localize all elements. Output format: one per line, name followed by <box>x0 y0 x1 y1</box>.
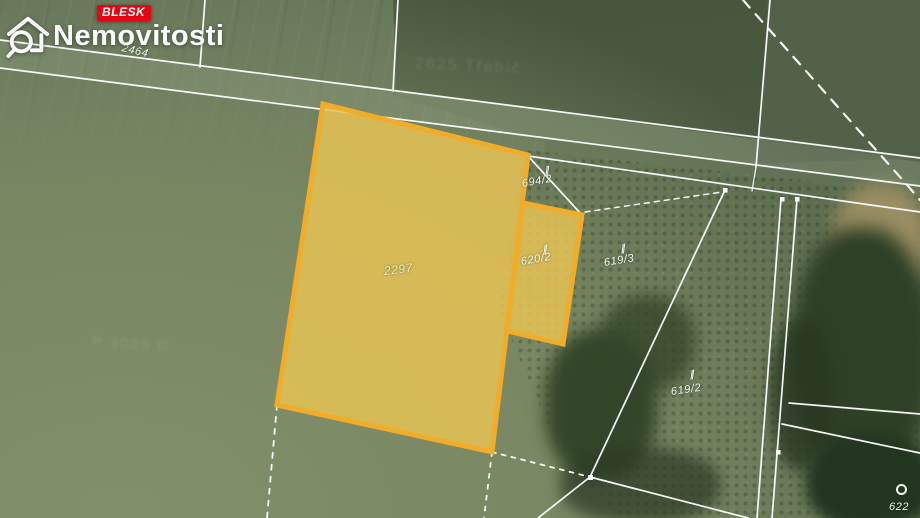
brand-badge: BLESK <box>97 5 151 21</box>
survey-point <box>795 197 800 202</box>
highlighted-parcels <box>277 104 582 452</box>
satellite-map-canvas[interactable]: 2625 Třebíč P 3025 G 2464 ∥ 694/2 2297 ∥… <box>0 0 920 518</box>
highlighted-parcel-main <box>277 104 528 452</box>
parcel-label-622: 622 <box>889 501 909 513</box>
boundary-right-1 <box>789 403 920 414</box>
survey-point-markers <box>588 188 800 480</box>
path-line-west <box>757 199 781 518</box>
dashed-620-north <box>585 192 722 212</box>
survey-point <box>588 475 593 480</box>
brand-text: BLESK Nemovitosti <box>53 5 224 51</box>
survey-point <box>776 450 781 455</box>
survey-point <box>780 197 785 202</box>
boundary-619-diagonal <box>590 190 725 477</box>
cadastral-overlay <box>0 0 920 518</box>
dashed-corner-south <box>484 452 492 518</box>
highlighted-parcel-secondary <box>507 203 582 344</box>
brand-name: Nemovitosti <box>53 21 224 51</box>
dashed-corner-east <box>492 452 590 477</box>
dashed-bottom-left <box>267 405 277 518</box>
path-line-east <box>772 199 797 518</box>
survey-circle-marker <box>896 484 907 495</box>
boundary-southwest <box>538 477 590 518</box>
division-line-2 <box>393 0 398 91</box>
survey-point <box>723 188 728 193</box>
house-magnifier-icon <box>5 14 51 58</box>
boundary-right-2 <box>782 424 920 453</box>
brand-logo: BLESK Nemovitosti <box>5 5 224 58</box>
boundary-southeast <box>590 477 748 518</box>
